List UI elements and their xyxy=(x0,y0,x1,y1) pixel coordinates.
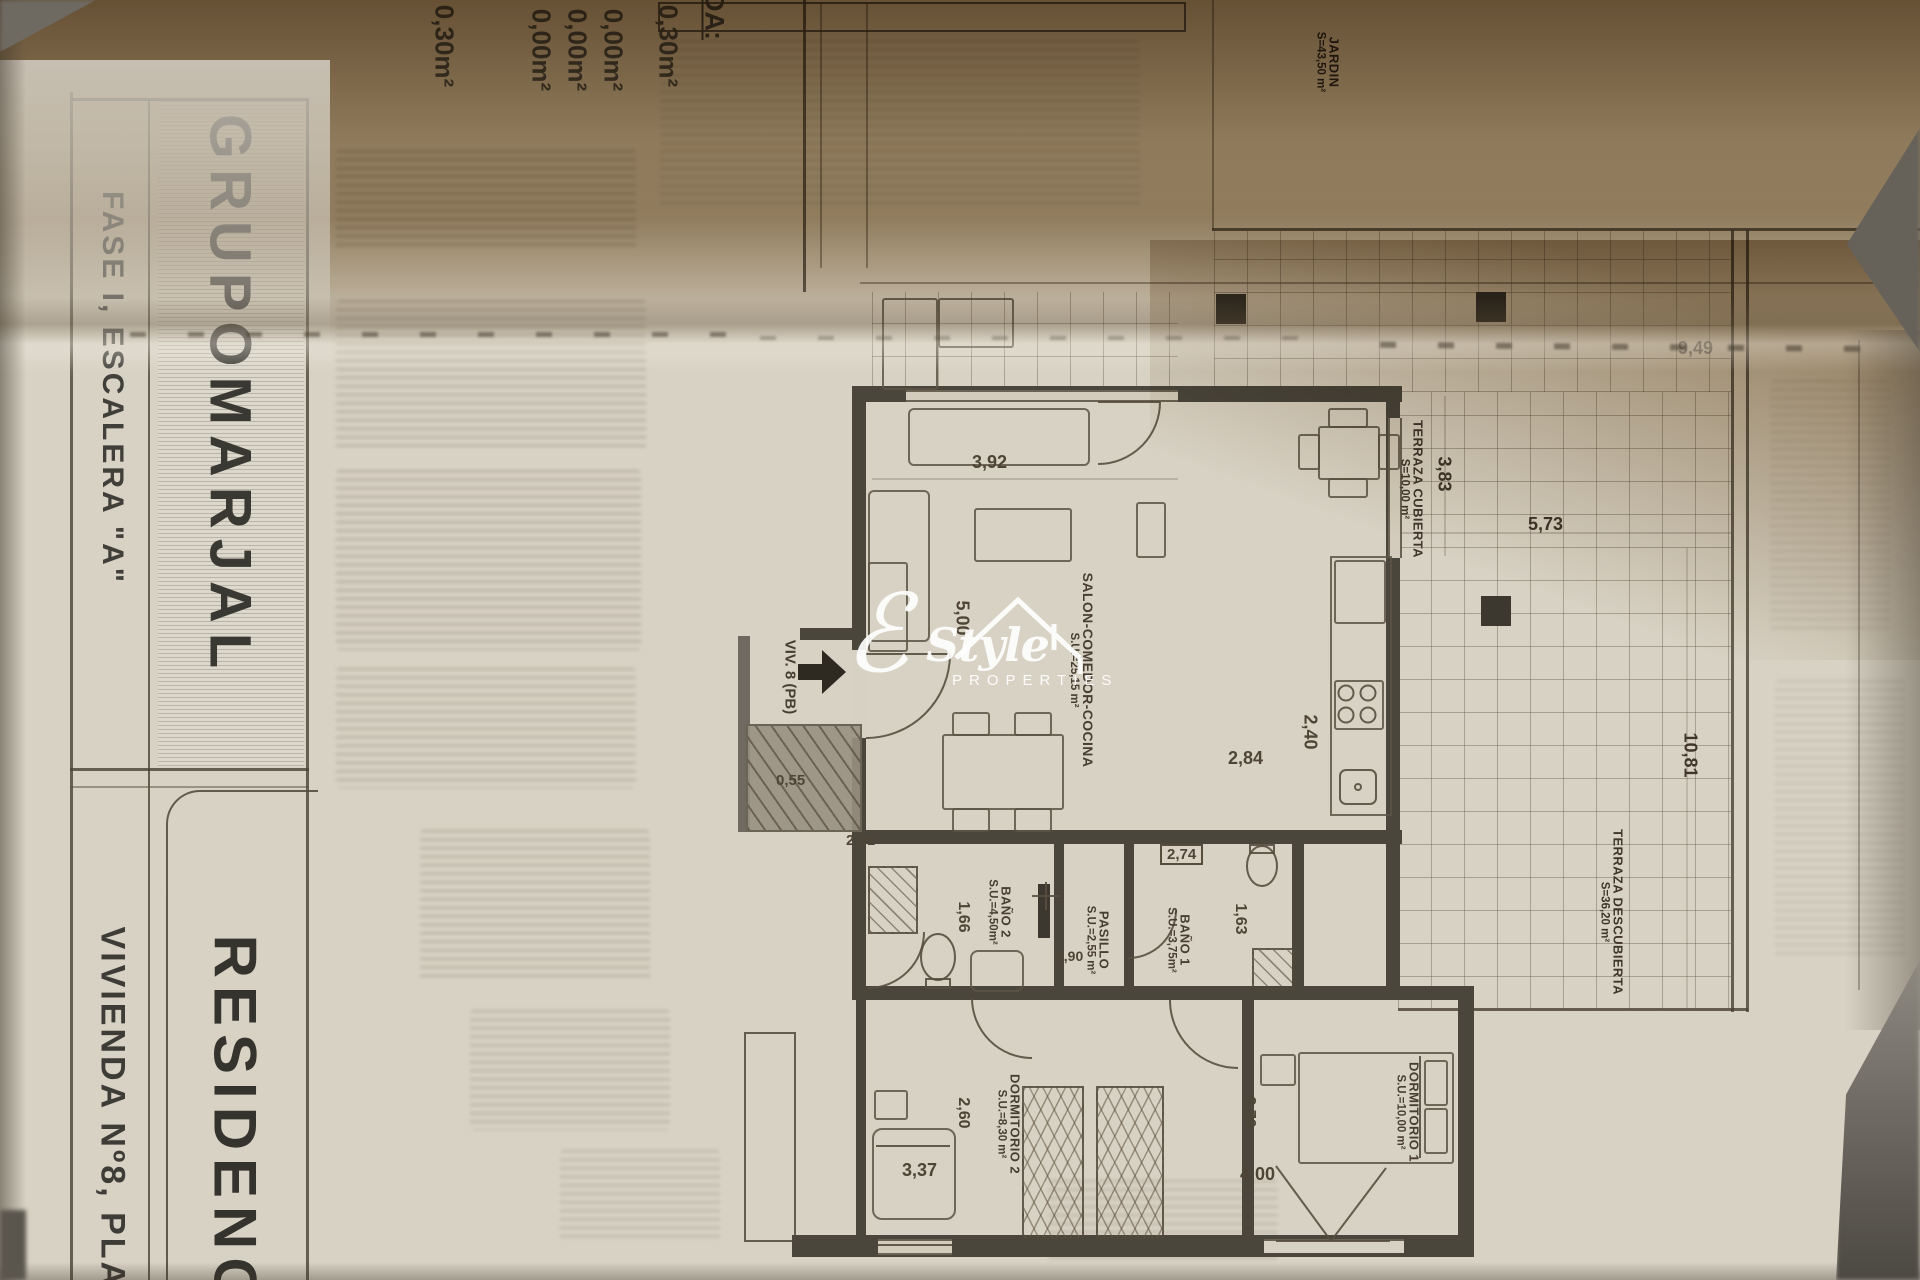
room-label-dorm2: DORMITORIO 2 S.U.=8,30 m² xyxy=(996,1074,1023,1174)
dorm2-door-arc xyxy=(972,998,1032,1058)
dim-terrace-length: 10,81 xyxy=(1680,732,1701,777)
dim-living-width: 2,84 xyxy=(1228,748,1263,769)
entrance-label: VIV. 8 (PB) xyxy=(782,640,799,714)
room-area: S.U.=4,50m² xyxy=(987,879,999,945)
toilet-bath2 xyxy=(921,934,955,980)
dim-dorm1-width: 4,00 xyxy=(1240,1164,1275,1185)
dim-bath1-len: 1,63 xyxy=(1231,903,1249,934)
bottom-edge-shadow xyxy=(0,1262,1920,1280)
room-name: TERRAZA DESCUBIERTA xyxy=(1611,829,1626,995)
dim-dorm1-height: 2,70 xyxy=(1240,1096,1258,1127)
dim-kitchen-width: 2,40 xyxy=(1300,714,1321,749)
room-name: DORMITORIO 2 xyxy=(1008,1074,1023,1174)
watermark-caption: PROPERTIES xyxy=(952,672,1118,689)
right-edge-shadow xyxy=(1845,330,1920,1030)
left-edge-shadow xyxy=(0,0,26,1280)
dorm1-window-swing xyxy=(1276,1166,1390,1241)
room-name: BAÑO 1 xyxy=(1178,907,1193,973)
room-label-terraza-descubierta: TERRAZA DESCUBIERTA S=36,20 m² xyxy=(1599,829,1626,995)
dim-bath1-width: 2,74 xyxy=(1160,844,1203,865)
room-name: BAÑO 2 xyxy=(999,879,1014,945)
fold-crease-dashes xyxy=(760,336,1320,340)
dimension-line xyxy=(872,478,1178,480)
room-area: S.U.=8,30 m² xyxy=(996,1074,1008,1174)
floorplan-photo: GRUPOMARJAL FASE I, ESCALERA "A" RESIDEN… xyxy=(0,0,1920,1280)
room-name: DORMITORIO 1 xyxy=(1407,1062,1422,1162)
dim-stair: 0,55 xyxy=(776,772,805,789)
bath2-door-arc xyxy=(868,932,924,988)
kitchen-sink xyxy=(1340,770,1376,804)
room-label-dorm1: DORMITORIO 1 S.U.=10,00 m² xyxy=(1395,1062,1422,1162)
dim-bath2-width: 2,91 xyxy=(846,832,875,849)
stove-burner xyxy=(1339,686,1354,701)
dim-dorm2-len: 3,37 xyxy=(902,1160,937,1181)
stove-burner xyxy=(1361,708,1376,723)
kitchen-faucet xyxy=(1355,784,1361,790)
watermark-initial: ℰ xyxy=(844,572,909,697)
room-name: PASILLO xyxy=(1097,906,1112,975)
room-label-bath2: BAÑO 2 S.U.=4,50m² xyxy=(987,879,1014,945)
stove-burner xyxy=(1361,686,1376,701)
stove-burner xyxy=(1339,708,1354,723)
room-area: S=36,20 m² xyxy=(1599,829,1611,995)
room-label-pasillo: PASILLO S.U.=2,55 m² xyxy=(1085,906,1112,975)
room-area: S.U.=2,55 m² xyxy=(1085,906,1097,975)
entrance-arrow-icon xyxy=(798,650,846,694)
room-label-bath1: BAÑO 1 S.U.=3,75m² xyxy=(1166,907,1193,973)
dim-dorm2-width: 2,60 xyxy=(954,1097,972,1128)
dim-bath2-len: 1,66 xyxy=(954,901,972,932)
photo-corner-bottom-left xyxy=(0,1210,26,1280)
dim-hall-width: 0,90 xyxy=(1056,948,1083,964)
room-area: S.U.=10,00 m² xyxy=(1395,1062,1407,1162)
room-area: S.U.=3,75m² xyxy=(1166,907,1178,973)
corridor-door-arc xyxy=(1170,1000,1238,1068)
fold-crease-dashes xyxy=(130,332,750,337)
shower-faucet-cross xyxy=(1032,882,1060,910)
dim-porch-width: 3,92 xyxy=(972,452,1007,473)
